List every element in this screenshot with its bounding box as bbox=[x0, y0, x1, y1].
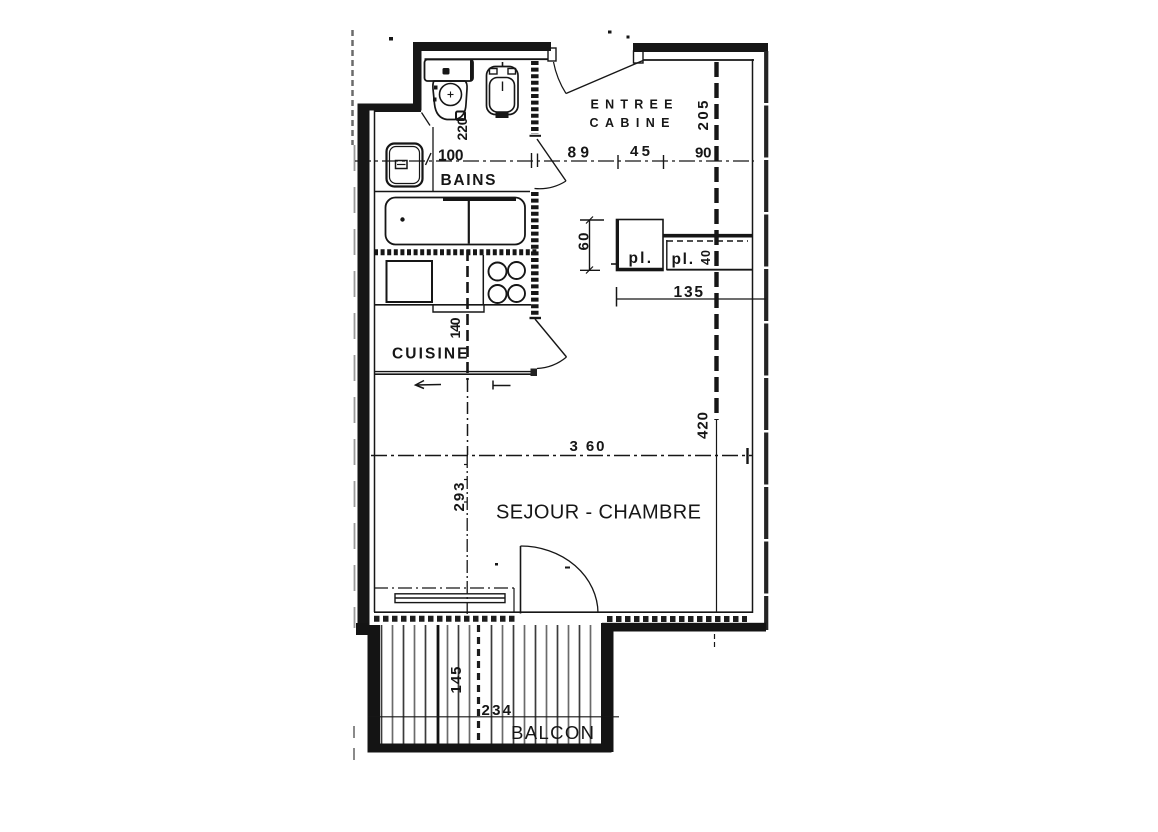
svg-text:pl.: pl. bbox=[629, 250, 652, 267]
svg-text:145: 145 bbox=[448, 667, 465, 694]
svg-text:420: 420 bbox=[695, 412, 712, 439]
svg-text:205: 205 bbox=[695, 101, 712, 131]
svg-text:234: 234 bbox=[482, 702, 512, 719]
svg-text:BAINS: BAINS bbox=[441, 172, 498, 189]
svg-text:SEJOUR - CHAMBRE: SEJOUR - CHAMBRE bbox=[496, 502, 701, 524]
svg-text:293: 293 bbox=[451, 483, 468, 512]
svg-text:3 60: 3 60 bbox=[570, 438, 605, 455]
svg-text:220: 220 bbox=[454, 117, 470, 140]
svg-text:CUISINE: CUISINE bbox=[392, 346, 469, 363]
svg-text:140: 140 bbox=[447, 317, 463, 338]
svg-text:90: 90 bbox=[695, 145, 712, 162]
svg-text:135: 135 bbox=[674, 284, 704, 301]
svg-text:pl.: pl. bbox=[672, 251, 694, 268]
svg-text:60: 60 bbox=[576, 233, 593, 251]
svg-text:100: 100 bbox=[438, 148, 464, 165]
svg-text:40: 40 bbox=[699, 250, 713, 265]
